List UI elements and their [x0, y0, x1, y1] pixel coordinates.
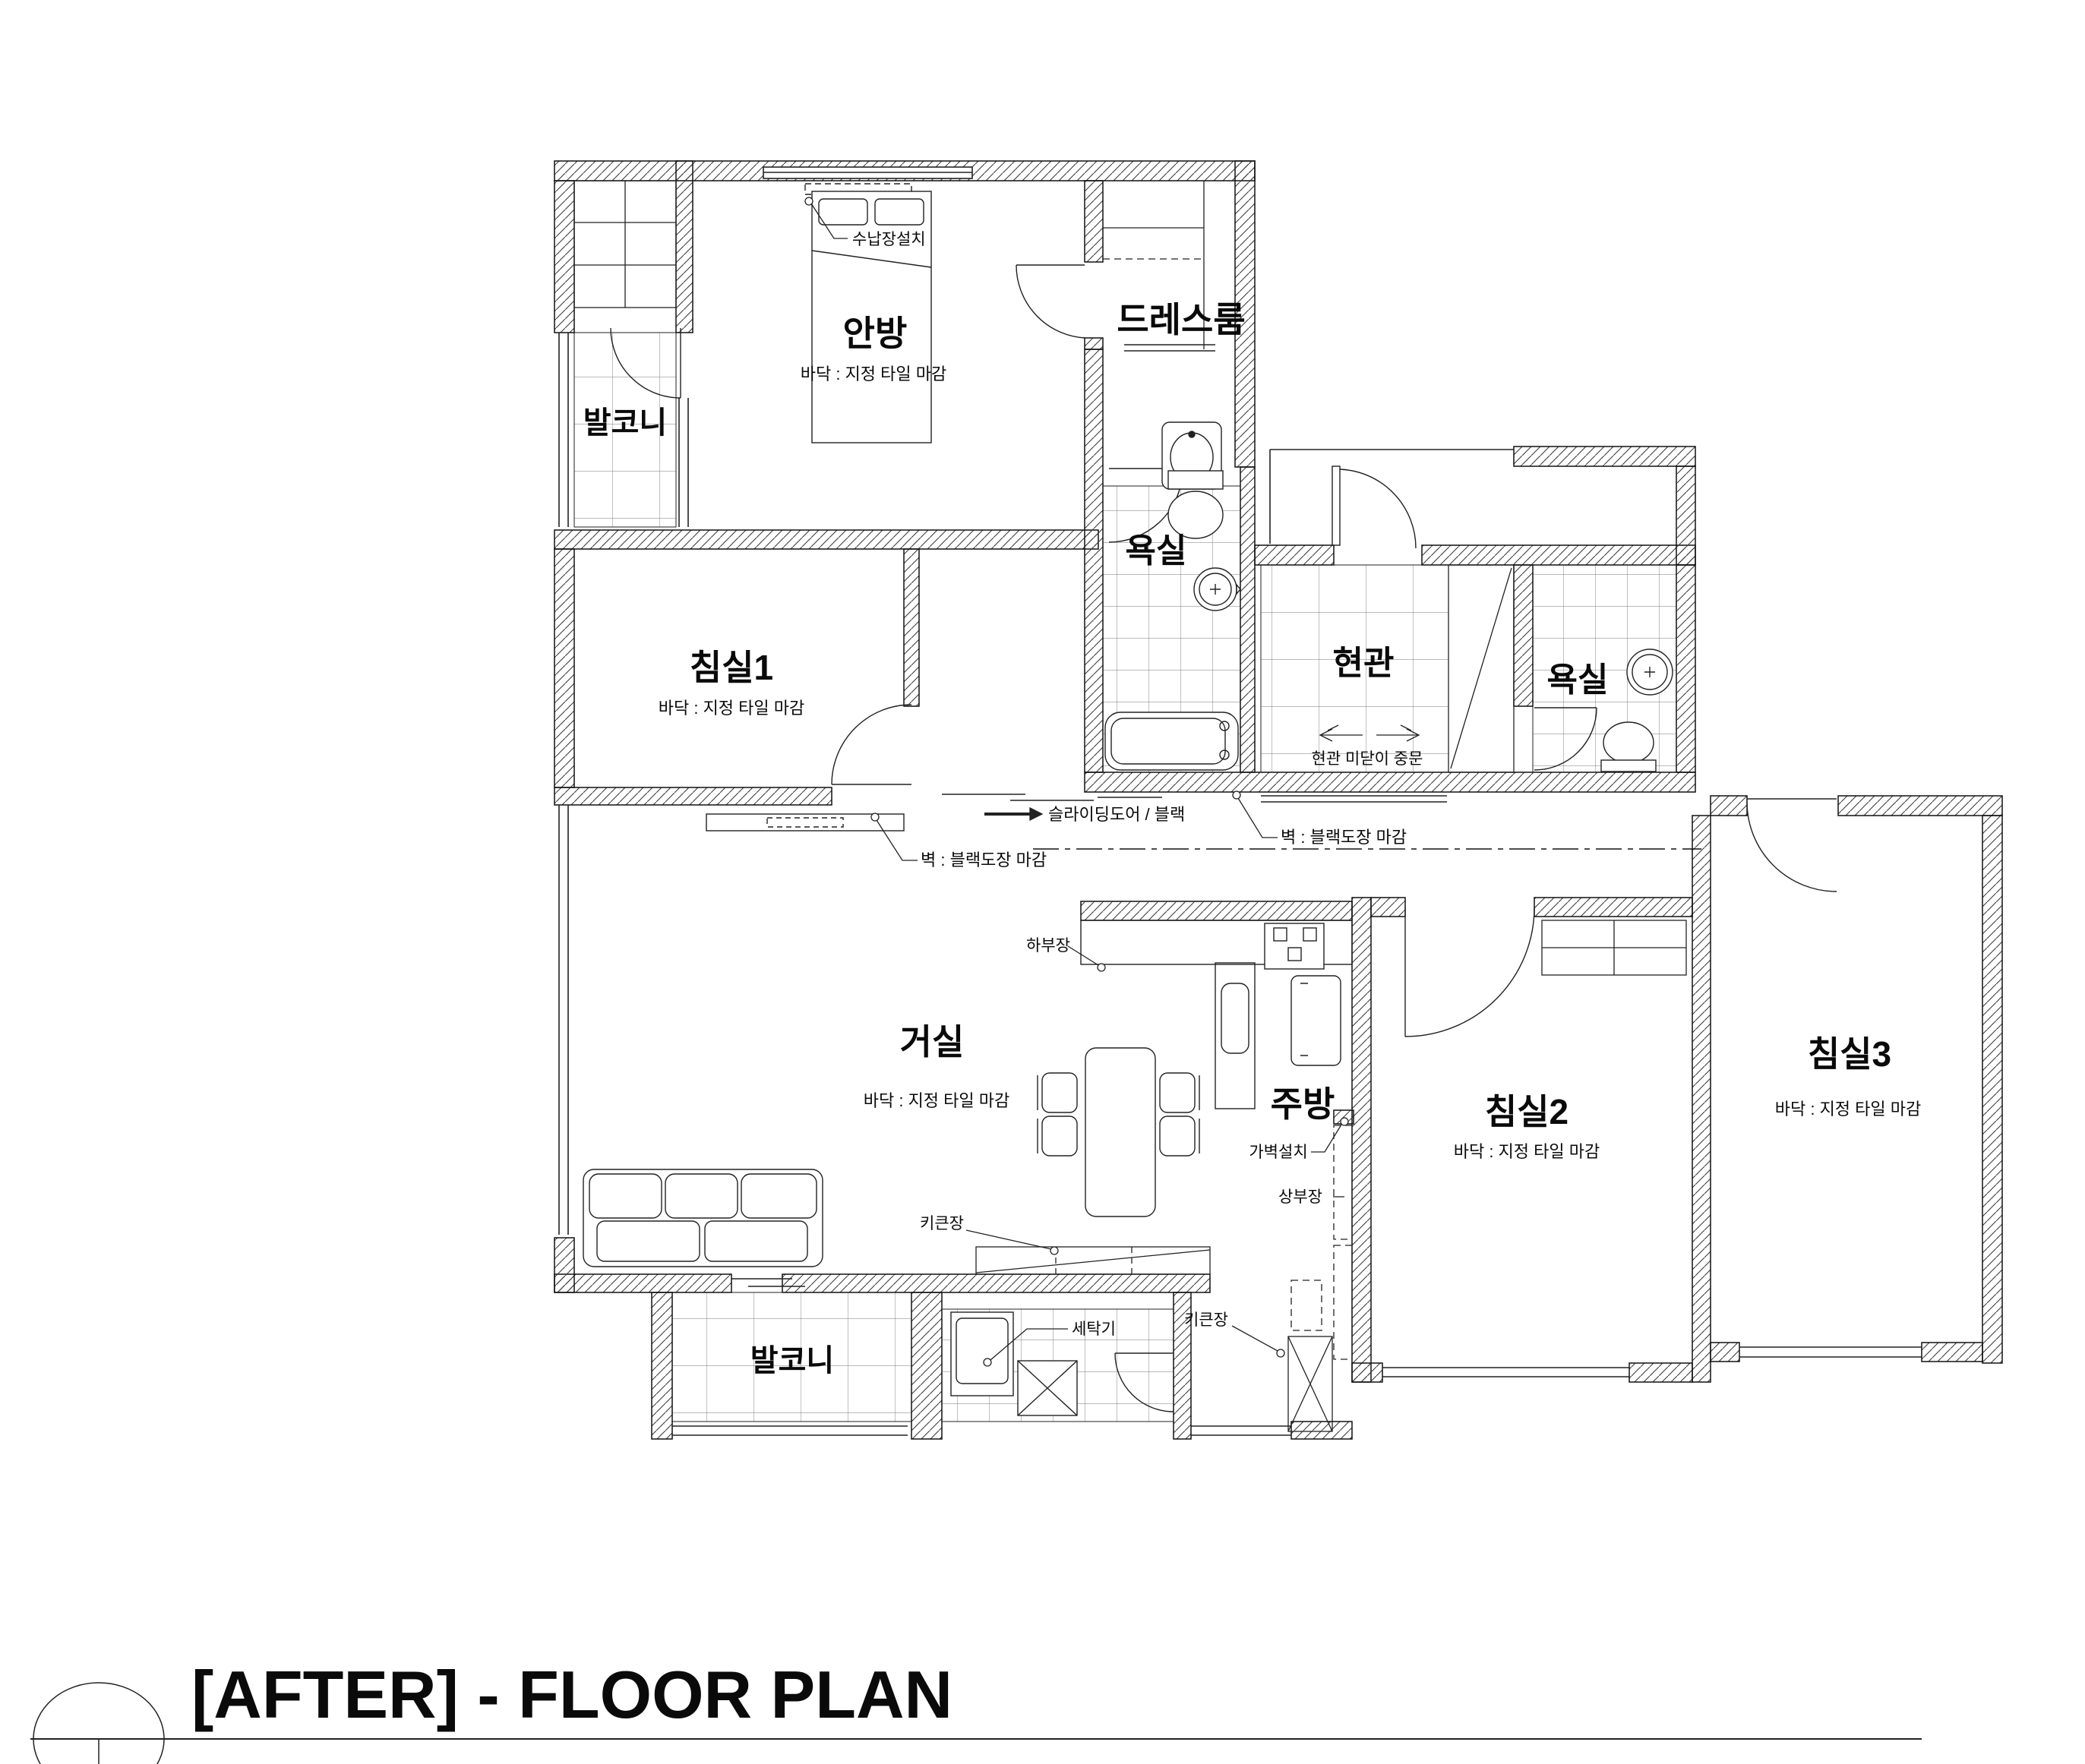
sofa-back-1: [589, 1174, 662, 1218]
ann-tall-cabinet-2: 키큰장: [1184, 1311, 1228, 1329]
tall-cabinet2-dashed: [1291, 1280, 1322, 1330]
label-living: 거실: [900, 1022, 965, 1062]
wall-bath1-right: [1240, 467, 1255, 772]
leader-circle-tall2: [1277, 1349, 1284, 1357]
ann-upper-cabinet: 상부장: [1278, 1188, 1322, 1206]
wall-bed3-top-left: [1711, 796, 1747, 816]
window-bed2-bottom: [1382, 1368, 1629, 1377]
porch-outline: [1270, 450, 1514, 544]
wall-bed2-bottom-left: [1352, 1363, 1382, 1382]
wall-living-bottom-left: [554, 1274, 731, 1292]
closet-balctl-grid: [574, 181, 676, 308]
wall-bed2-left: [1352, 898, 1371, 1382]
label-anbang: 안방: [843, 314, 908, 353]
wall-bed2-bed3-divider: [1692, 816, 1711, 1382]
leader-tall2: [1232, 1326, 1278, 1351]
wall-wet-bottom: [1085, 772, 1695, 792]
chair-1: [1042, 1073, 1077, 1112]
window-living-left: [559, 805, 568, 1235]
bathtub: [1105, 712, 1238, 770]
label-balcony-bottom: 발코니: [750, 1344, 834, 1377]
leader-lower-cabinet: [1068, 946, 1098, 965]
drawing-title: [AFTER] - FLOOR PLAN: [191, 1657, 952, 1732]
entrance-threshold: [1261, 796, 1447, 802]
tall-cabinet-strip-dividers: [1056, 1247, 1132, 1274]
door-bedroom1: [832, 705, 911, 784]
sub-bedroom3: 바닥 : 지정 타일 마감: [1775, 1100, 1921, 1119]
wall-bed2-bottom-right: [1629, 1363, 1692, 1382]
wall-shoe-right: [1514, 565, 1533, 706]
floor-plan-page: 안방 바닥 : 지정 타일 마감 드레스룸 발코니 침실1 바닥 : 지정 타일…: [0, 0, 2085, 1764]
vanity-faucet: [1189, 431, 1195, 437]
leader-wall-right: [1238, 798, 1278, 838]
tall-cabinet-strip: [976, 1247, 1210, 1274]
leader-circle-wall-left: [871, 813, 879, 821]
wall-bath2-right: [1676, 565, 1695, 772]
ann-storage-install: 수납장설치: [852, 231, 926, 248]
leader-circle-wall-right: [1233, 791, 1240, 799]
ann-tall-cabinet-1: 키큰장: [920, 1215, 964, 1232]
window-dress-bottom: [1124, 345, 1215, 351]
door-bedroom2: [1405, 907, 1534, 1037]
ann-wall-black-right: 벽 : 블랙도장 마감: [1281, 828, 1407, 847]
wall-corridor-bottom-stub: [1291, 1422, 1352, 1439]
door-front-arc: [1340, 469, 1416, 548]
kitchen-sink: [1221, 983, 1249, 1053]
wall-entrance-top-left: [1255, 545, 1334, 565]
wall-step-top: [1514, 447, 1695, 466]
toilet2-tank: [1601, 760, 1656, 772]
ann-lower-cabinet: 하부장: [1026, 937, 1070, 955]
door-anbang: [1016, 265, 1085, 338]
ann-partition-wall: 가벽설치: [1249, 1144, 1307, 1161]
chair-4: [1160, 1116, 1195, 1156]
sliding-door-corridor: [942, 794, 1162, 800]
bedroom2-closet-lines: [1542, 920, 1686, 975]
wall-bed1-right: [904, 549, 919, 706]
window-bed3-bottom: [1739, 1347, 1922, 1357]
bed-pillow-2: [875, 199, 924, 225]
wall-bed3-right: [1982, 816, 2002, 1363]
wall-kitchen-top: [1081, 901, 1352, 920]
label-dressroom: 드레스룸: [1117, 300, 1245, 339]
wall-balcb-utility-divider: [911, 1292, 942, 1439]
sofa: [583, 1169, 823, 1267]
upper-cabinet-dashed: [1334, 1125, 1352, 1239]
leader-circle-tall1: [1050, 1247, 1058, 1254]
wall-dress-left-a: [1085, 181, 1103, 262]
sub-bedroom1: 바닥 : 지정 타일 마감: [659, 699, 804, 718]
floor-plan-drawing: 안방 바닥 : 지정 타일 마감 드레스룸 발코니 침실1 바닥 : 지정 타일…: [0, 0, 2085, 1764]
sliding-arrow-head: [1030, 808, 1042, 820]
ann-wall-black-left: 벽 : 블랙도장 마감: [921, 850, 1047, 869]
label-bath2: 욕실: [1547, 661, 1609, 699]
leader-circle-partition: [1341, 1118, 1348, 1125]
door-bedroom3: [1747, 799, 1837, 891]
toilet1-tank: [1168, 471, 1223, 489]
wall-bed1-left: [554, 549, 574, 787]
wall-dress-left-b: [1085, 338, 1103, 349]
window-corridor-bottom: [1191, 1426, 1291, 1435]
label-entrance: 현관: [1333, 645, 1395, 682]
toilet1-bowl: [1168, 491, 1223, 538]
dining-table: [1085, 1048, 1155, 1216]
leader-partition: [1311, 1125, 1341, 1152]
wall-bath1-left: [1085, 349, 1103, 772]
window-balcb-bottom: [672, 1426, 908, 1435]
wall-bed1-bottom: [554, 787, 832, 805]
wall-living-bottom-right: [782, 1274, 1210, 1292]
title-block: [AFTER] - FLOOR PLAN: [30, 1657, 1922, 1764]
label-balcony-top: 발코니: [583, 406, 667, 440]
window-balctl-right: [679, 398, 688, 527]
wall-balctl-left: [554, 181, 574, 333]
sub-anbang: 바닥 : 지정 타일 마감: [801, 364, 946, 383]
label-bedroom2: 침실2: [1485, 1092, 1568, 1131]
tall-cabinet2-x: [1288, 1336, 1332, 1431]
door-front-leaf: [1332, 466, 1340, 545]
leader-circle-lower-cabinet: [1098, 964, 1105, 971]
sofa-seat-1: [597, 1221, 700, 1261]
sofa-seat-2: [705, 1221, 807, 1261]
window-balctl-left: [559, 333, 568, 527]
wall-bed2-top-stub: [1371, 898, 1405, 917]
leader-circle-washer: [984, 1359, 991, 1366]
wall-bed2-top: [1534, 898, 1692, 917]
ann-entrance-sliding-door: 현관 미닫이 중문: [1312, 750, 1423, 768]
wall-balcb-left: [652, 1292, 672, 1439]
chair-2: [1042, 1116, 1077, 1156]
chair-3: [1160, 1073, 1195, 1112]
shoe-closet-diagonal: [1451, 568, 1512, 768]
wall-entrance-top-right: [1422, 545, 1695, 565]
leader-tall1: [966, 1230, 1051, 1249]
wall-bed3-bottom-left: [1711, 1343, 1739, 1362]
label-bedroom1: 침실1: [690, 648, 773, 687]
wall-balctl-right: [676, 161, 693, 333]
fridge-handles: [1300, 983, 1308, 1056]
label-kitchen: 주방: [1271, 1084, 1335, 1124]
sub-bedroom2: 바닥 : 지정 타일 마감: [1454, 1142, 1600, 1161]
label-bath1: 욕실: [1126, 532, 1187, 570]
sofa-back-3: [741, 1174, 817, 1218]
sub-living: 바닥 : 지정 타일 마감: [864, 1091, 1009, 1110]
wall-bed1-top: [554, 530, 1098, 549]
sofa-back-2: [665, 1174, 738, 1218]
fridge: [1291, 976, 1341, 1065]
wall-bed3-top-right: [1838, 796, 2002, 816]
bed-pillow-1: [819, 199, 867, 225]
toilet2-bowl: [1603, 722, 1654, 763]
wall-living-left-corner: [554, 1238, 574, 1292]
ann-sliding-door: 슬라이딩도어 / 블랙: [1048, 805, 1185, 824]
tall-cabinet-strip-diagonal: [976, 1250, 1210, 1273]
upper-cabinet-dashed2: [1334, 1245, 1352, 1359]
wall-bed3-bottom-right: [1922, 1343, 1982, 1362]
dining-set: [1038, 1048, 1199, 1216]
wall-step-vert: [1676, 466, 1695, 565]
label-bedroom3: 침실3: [1808, 1034, 1891, 1074]
ann-washer: 세탁기: [1072, 1321, 1116, 1338]
